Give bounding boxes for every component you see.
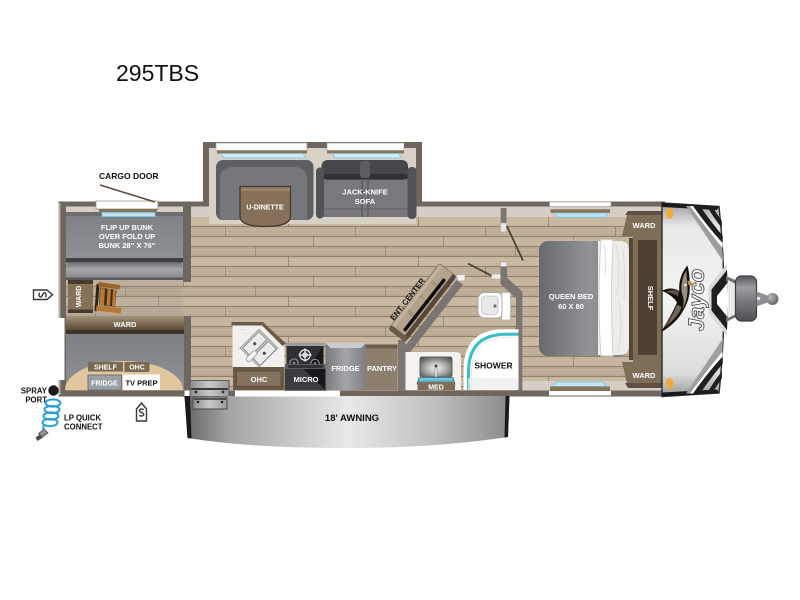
svg-text:BUNK 28" X 76": BUNK 28" X 76" [99,241,156,250]
svg-text:WARD: WARD [633,221,656,230]
svg-text:18' AWNING: 18' AWNING [325,413,379,424]
svg-text:SHELF: SHELF [646,286,655,311]
svg-text:OHC: OHC [251,375,268,384]
svg-text:PORT: PORT [25,396,47,405]
svg-text:60 X 80: 60 X 80 [558,302,584,311]
svg-text:QUEEN BED: QUEEN BED [549,292,594,301]
svg-text:295TBS: 295TBS [116,60,199,86]
svg-text:WARD: WARD [76,286,83,307]
svg-text:LP QUICK: LP QUICK [64,414,101,423]
svg-text:SPRAY: SPRAY [21,387,48,396]
svg-text:CONNECT: CONNECT [64,423,103,432]
svg-text:MICRO: MICRO [294,375,319,384]
svg-text:FLIP UP BUNK: FLIP UP BUNK [101,223,154,232]
svg-text:SOFA: SOFA [355,197,376,206]
svg-text:TV PREP: TV PREP [125,379,157,388]
svg-text:WARD: WARD [114,320,137,329]
svg-text:FRIDGE: FRIDGE [91,381,118,388]
svg-text:OHC: OHC [129,365,145,372]
svg-text:PANTRY: PANTRY [367,364,397,373]
svg-text:FRIDGE: FRIDGE [331,364,359,373]
svg-text:WARD: WARD [633,371,656,380]
svg-text:CARGO DOOR: CARGO DOOR [99,171,159,181]
svg-text:SHELF: SHELF [94,365,118,372]
svg-text:U-DINETTE: U-DINETTE [246,205,284,212]
svg-text:MED: MED [428,385,444,392]
svg-text:JACK-KNIFE: JACK-KNIFE [342,188,387,197]
svg-text:OVER FOLD UP: OVER FOLD UP [99,232,155,241]
svg-text:SHOWER: SHOWER [474,361,512,371]
